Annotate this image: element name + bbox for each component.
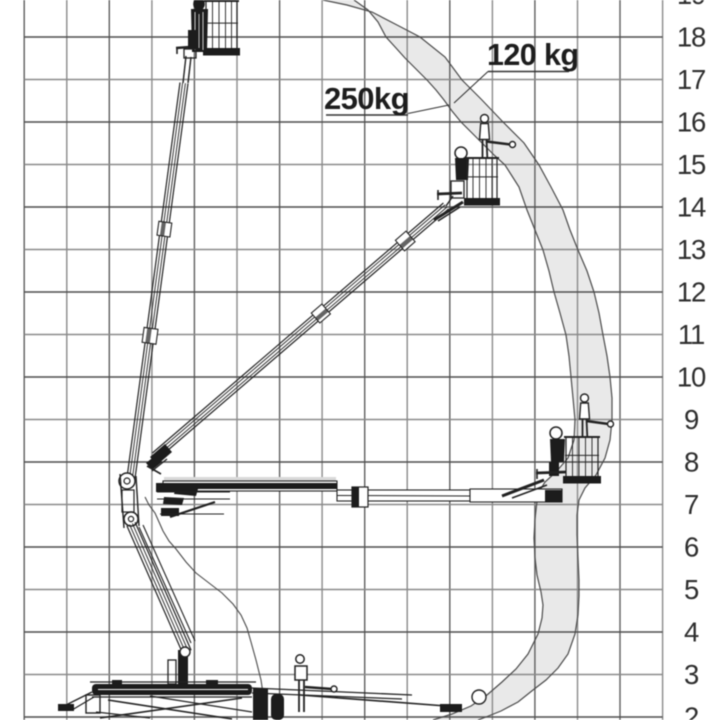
svg-text:14: 14: [677, 192, 706, 223]
svg-text:9: 9: [684, 404, 698, 435]
svg-text:7: 7: [684, 489, 698, 520]
svg-text:16: 16: [677, 107, 706, 138]
svg-text:12: 12: [677, 277, 705, 308]
svg-text:13: 13: [677, 234, 706, 265]
svg-text:10: 10: [677, 362, 706, 393]
svg-text:15: 15: [677, 149, 706, 180]
svg-text:120 kg: 120 kg: [487, 38, 578, 72]
svg-text:8: 8: [684, 447, 699, 478]
svg-text:19: 19: [677, 0, 705, 10]
svg-text:4: 4: [684, 617, 699, 648]
svg-text:250kg: 250kg: [324, 81, 409, 116]
svg-text:6: 6: [684, 532, 699, 563]
svg-text:17: 17: [677, 64, 705, 95]
svg-text:11: 11: [678, 319, 704, 350]
svg-text:18: 18: [677, 22, 706, 53]
svg-text:5: 5: [684, 574, 699, 605]
svg-text:3: 3: [684, 659, 699, 690]
svg-text:2: 2: [684, 702, 698, 720]
